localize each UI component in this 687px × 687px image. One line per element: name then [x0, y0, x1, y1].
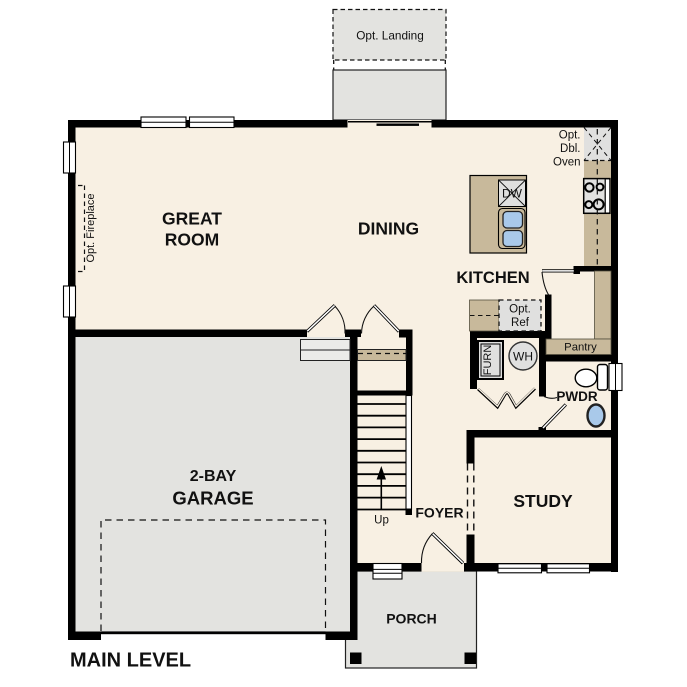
svg-text:DW: DW	[502, 187, 523, 201]
svg-text:PWDR: PWDR	[556, 389, 597, 404]
svg-text:FURN: FURN	[482, 345, 494, 376]
svg-text:Opt.: Opt.	[509, 304, 531, 316]
svg-text:GARAGE: GARAGE	[172, 488, 253, 509]
svg-text:DINING: DINING	[358, 219, 419, 239]
svg-text:WH: WH	[513, 350, 533, 364]
svg-text:Opt.: Opt.	[559, 130, 581, 142]
svg-text:Opt. Landing: Opt. Landing	[356, 29, 424, 43]
svg-text:ROOM: ROOM	[165, 230, 219, 250]
svg-text:FOYER: FOYER	[415, 505, 463, 521]
svg-text:MAIN LEVEL: MAIN LEVEL	[70, 650, 191, 672]
svg-text:Ref: Ref	[511, 317, 530, 329]
svg-text:Dbl.: Dbl.	[560, 143, 580, 155]
svg-text:PORCH: PORCH	[386, 611, 437, 627]
svg-text:STUDY: STUDY	[513, 491, 573, 511]
svg-text:2-BAY: 2-BAY	[190, 468, 237, 485]
svg-text:Up: Up	[374, 515, 389, 527]
svg-text:Oven: Oven	[553, 157, 581, 169]
svg-text:KITCHEN: KITCHEN	[456, 269, 529, 287]
svg-text:Opt. Fireplace: Opt. Fireplace	[85, 193, 97, 262]
svg-text:GREAT: GREAT	[162, 209, 222, 229]
svg-text:Pantry: Pantry	[564, 342, 597, 354]
